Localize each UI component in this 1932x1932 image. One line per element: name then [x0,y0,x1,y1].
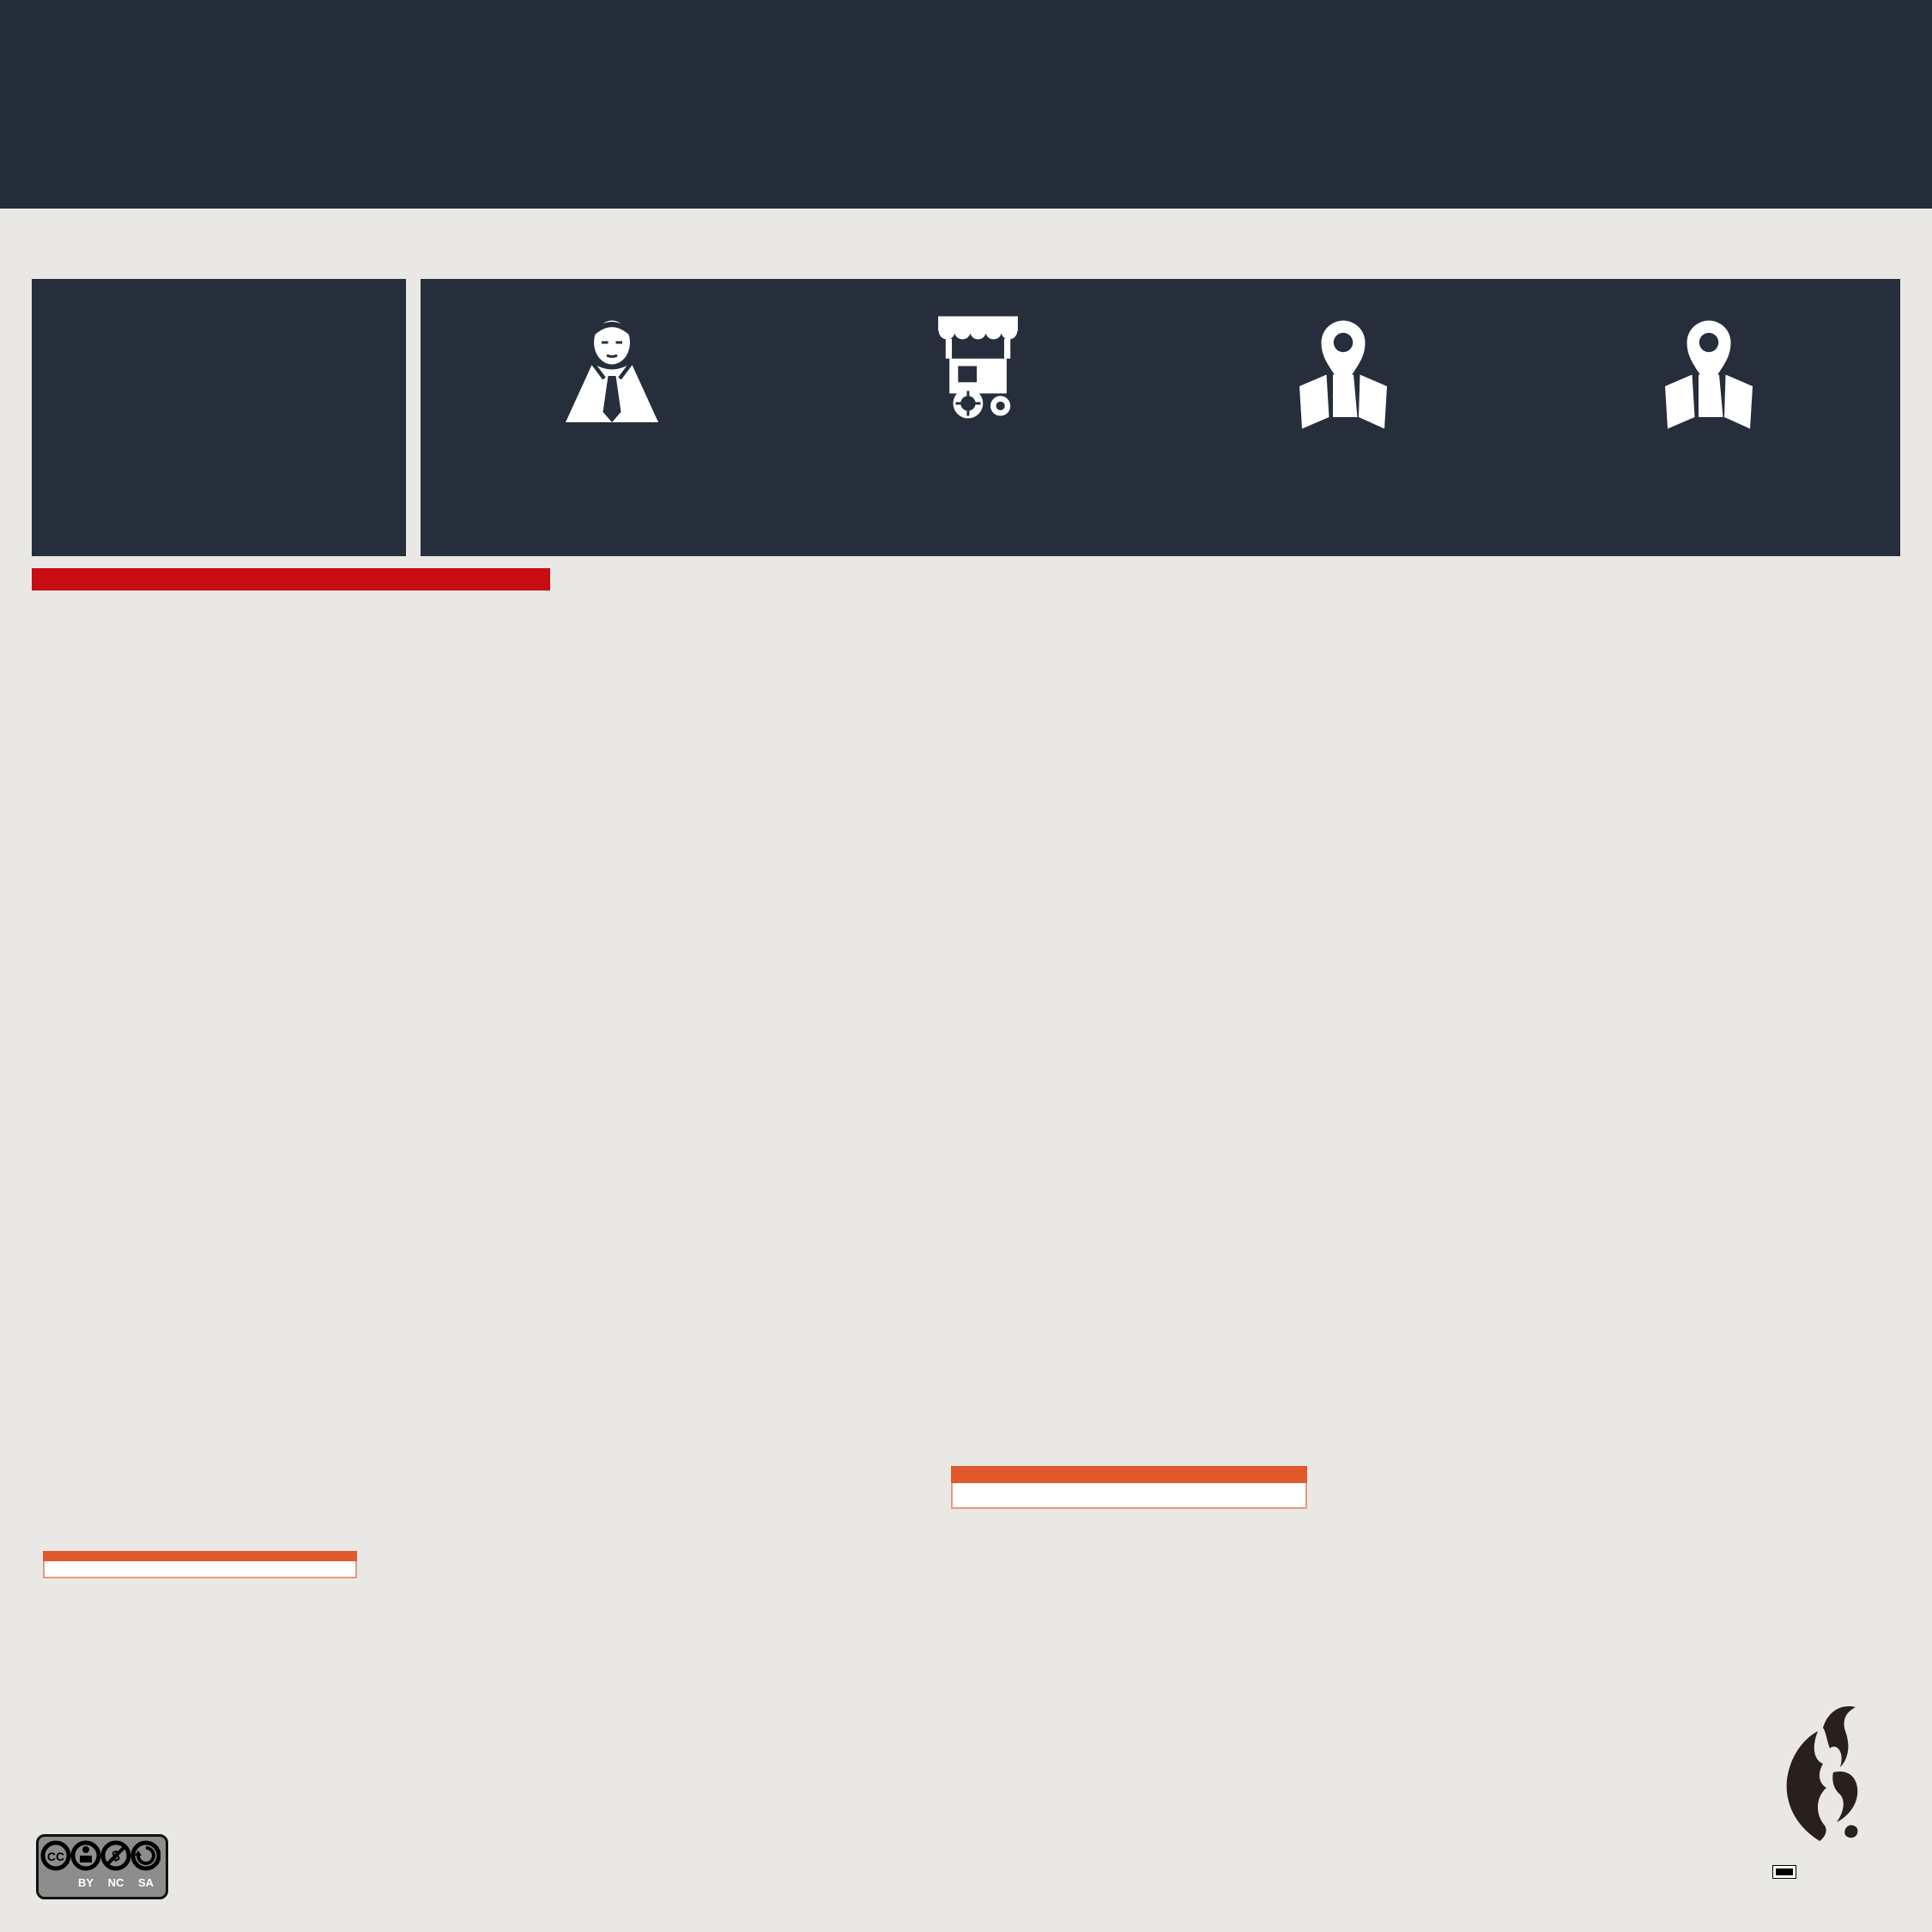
comparison-soweto [429,301,795,534]
svg-text:NC: NC [108,1876,124,1889]
cc-license-badge: CC $ BY NC SA [36,1834,168,1899]
svg-text:CC: CC [47,1850,64,1863]
infographic-canvas: CC $ BY NC SA [0,0,1932,1932]
source-credit [172,1864,179,1898]
map-pin-icon [1557,301,1861,430]
comparison-panel [421,279,1900,556]
attribution-icon [73,1843,99,1868]
cc-icon: CC [43,1843,69,1868]
aljazeera-wordmark [1773,1866,1796,1878]
aljazeera-logo-icon [1766,1695,1878,1854]
comparison-bedfordview [1526,301,1892,534]
non-commercial-icon: $ [103,1843,129,1868]
svg-text:SA: SA [138,1876,154,1889]
svg-text:BY: BY [78,1876,94,1889]
map-pin-icon [1191,301,1495,430]
comparison-houghton [1160,301,1526,534]
cart-icon [826,301,1130,430]
header [0,0,1932,209]
size-stat-panel [32,279,406,556]
mandela-icon [460,301,764,430]
share-alike-icon [133,1843,159,1868]
comparison-fordsburg [795,301,1160,534]
satellite-analysis-note [32,568,550,591]
